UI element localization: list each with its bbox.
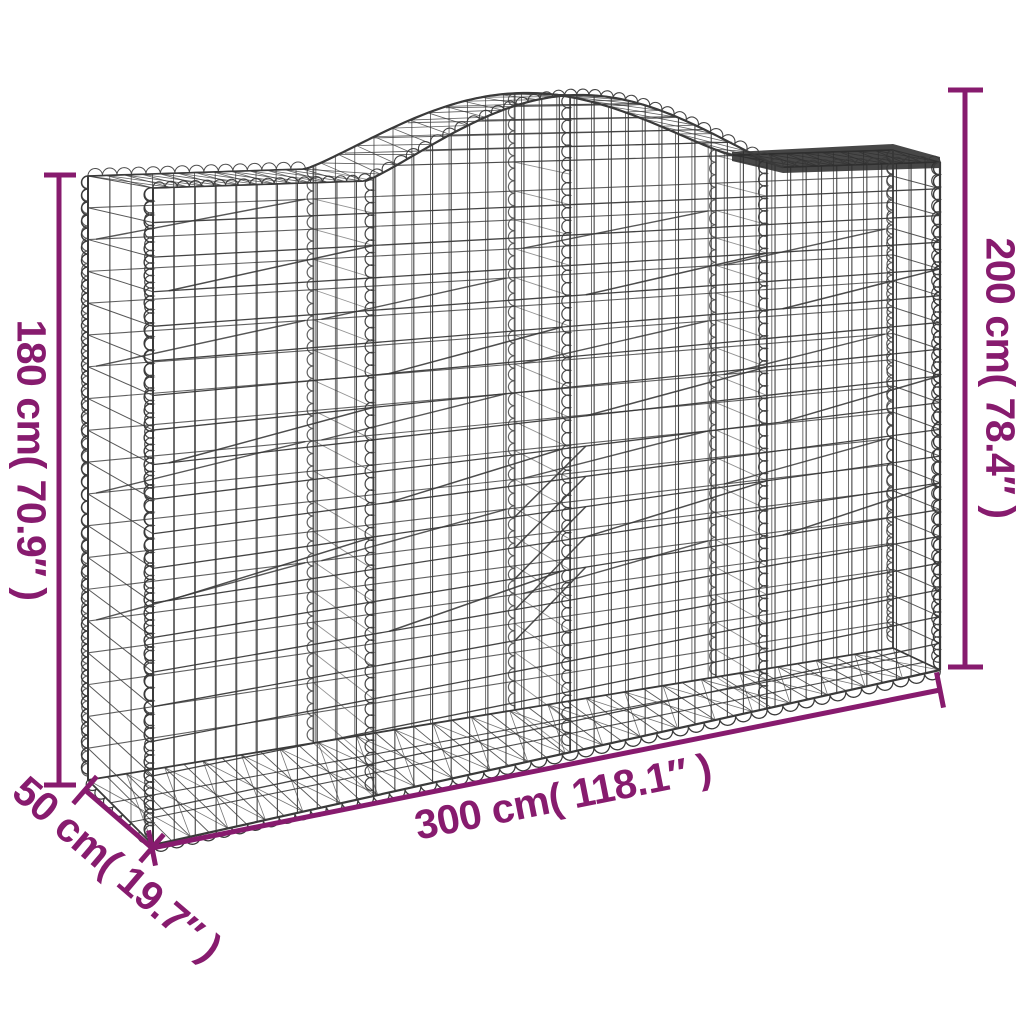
wire bbox=[88, 653, 153, 707]
wire bbox=[96, 199, 305, 239]
wire bbox=[106, 175, 153, 188]
wire bbox=[88, 494, 153, 534]
wire bbox=[508, 93, 514, 710]
wire bbox=[313, 199, 373, 213]
wire bbox=[893, 281, 940, 296]
wire bbox=[365, 177, 373, 796]
product-dimension-diagram: 180 cm( 70.9″ ) 200 cm( 78.4″ ) 300 cm( … bbox=[0, 0, 1024, 1024]
wire bbox=[710, 150, 716, 677]
wire bbox=[203, 761, 265, 820]
wire bbox=[625, 692, 641, 737]
wire bbox=[313, 380, 373, 407]
wire bbox=[88, 303, 153, 326]
wire bbox=[88, 335, 153, 361]
wire bbox=[88, 526, 153, 569]
wire bbox=[471, 717, 527, 762]
height-left-label: 180 cm( 70.9″ ) bbox=[8, 319, 55, 600]
wire bbox=[280, 749, 341, 804]
wire bbox=[523, 541, 708, 594]
wire bbox=[389, 571, 562, 631]
wire bbox=[307, 166, 313, 743]
wire bbox=[313, 290, 373, 311]
wire bbox=[410, 117, 485, 120]
wire bbox=[515, 476, 586, 547]
wire bbox=[313, 531, 373, 569]
wire bbox=[111, 656, 910, 803]
wire bbox=[515, 652, 570, 691]
wire bbox=[515, 479, 570, 508]
wire bbox=[313, 229, 373, 245]
wire bbox=[356, 146, 398, 165]
wire bbox=[88, 621, 153, 672]
height-right-label: 200 cm( 78.4″ ) bbox=[977, 237, 1024, 518]
wire bbox=[893, 255, 940, 269]
wire bbox=[88, 208, 153, 223]
wire bbox=[313, 592, 373, 634]
wire bbox=[241, 755, 303, 812]
wire bbox=[663, 686, 678, 729]
wire bbox=[724, 439, 885, 484]
wire bbox=[145, 188, 153, 845]
wire bbox=[88, 685, 153, 742]
wire bbox=[515, 446, 586, 517]
wire bbox=[660, 125, 695, 126]
basket-divider-panels bbox=[313, 156, 766, 796]
wire bbox=[96, 442, 305, 494]
dimension-length-bottom bbox=[149, 672, 944, 865]
wire bbox=[523, 431, 708, 479]
wire bbox=[313, 320, 373, 343]
wire bbox=[510, 711, 566, 753]
wire bbox=[313, 683, 373, 732]
wire bbox=[88, 622, 893, 748]
wire bbox=[426, 142, 732, 150]
wire bbox=[701, 679, 715, 720]
wire bbox=[88, 462, 153, 499]
wire bbox=[88, 271, 153, 291]
wire bbox=[88, 399, 153, 431]
wire bbox=[88, 367, 153, 396]
wire bbox=[313, 350, 373, 375]
wire bbox=[169, 537, 374, 601]
wire bbox=[515, 507, 586, 579]
wire bbox=[625, 692, 678, 728]
wire bbox=[313, 501, 373, 537]
wire bbox=[663, 686, 715, 720]
wire bbox=[88, 240, 153, 258]
wire bbox=[562, 95, 570, 752]
wire bbox=[165, 767, 191, 836]
wire bbox=[313, 562, 373, 602]
wire bbox=[586, 367, 767, 416]
wire bbox=[313, 259, 373, 277]
wire bbox=[392, 125, 468, 128]
